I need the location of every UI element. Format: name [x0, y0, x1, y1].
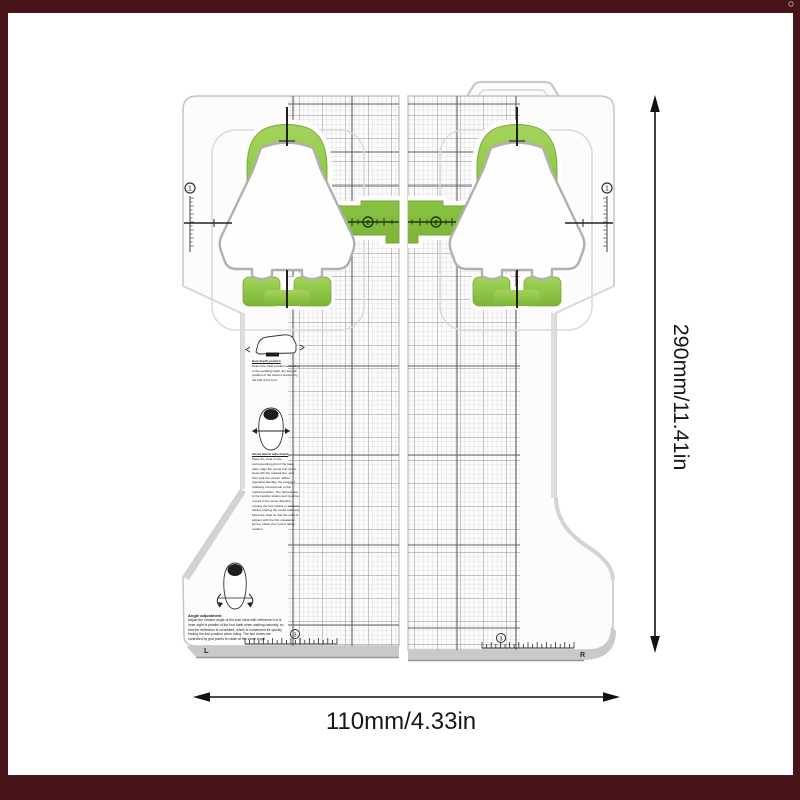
instruction-lateral-title: About lateral adjustment: [252, 452, 300, 457]
instruction-block-lateral: About lateral adjustment Place the cleat…: [252, 452, 300, 540]
ruler-number-right: 1: [605, 186, 609, 193]
bottom-marker-right: 3: [499, 636, 502, 642]
instruction-block-heel: Heel depth position Select the cleat pos…: [252, 359, 299, 409]
instruction-angle-body: Adjust the rotation angle of the sole sh…: [188, 618, 284, 640]
product-screenshot: 2 2 1 1 3 3 L R Heel depth position Sele…: [0, 0, 800, 800]
ruler-number-left: 1: [188, 186, 192, 193]
instruction-heel-body: Select the cleat position according to t…: [252, 364, 299, 381]
height-dimension-label: 290mm/11.41in: [669, 324, 693, 471]
instruction-heel-title: Heel depth position: [252, 359, 299, 363]
bottom-marker-left: 3: [293, 632, 296, 638]
width-dimension-label: 110mm/4.33in: [326, 708, 476, 735]
cleat-alignment-tool-image: 2 2 1 1 3 3 L R Heel depth position Sele…: [0, 0, 800, 800]
instruction-block-angle: Angle adjustment Adjust the rotation ang…: [188, 613, 285, 650]
instruction-lateral-body: Place the cleat on the corresponding gri…: [252, 457, 300, 531]
foot-label-right: R: [580, 652, 585, 659]
